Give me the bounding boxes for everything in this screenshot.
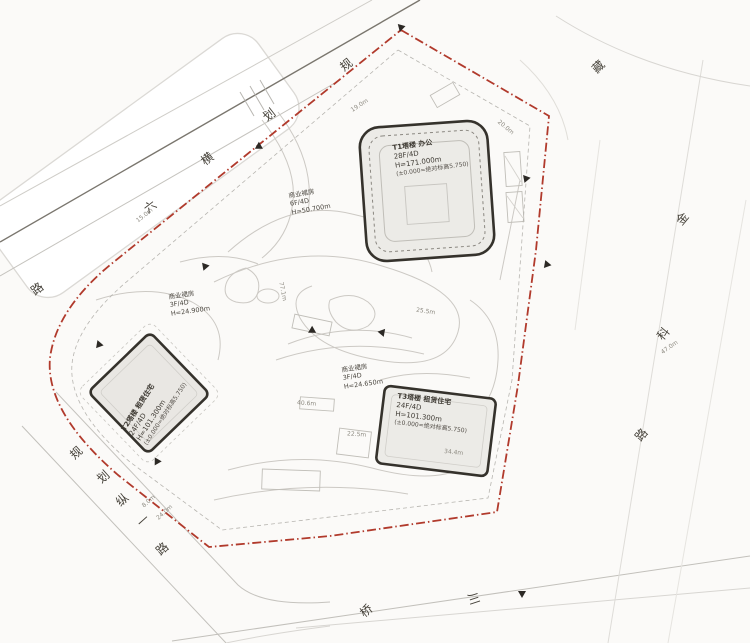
neighbor-building-outline (0, 23, 309, 308)
road-lines (0, 0, 750, 643)
podium-label-2: 商业裙房 3F/4D H=24.900m (168, 288, 211, 319)
plan-linework (0, 0, 750, 643)
site-plan-canvas: 规划横六路规划纵一路金科路藏桥川15.0m19.0m20.0m8.0m24.0m… (0, 0, 750, 643)
podium-label-3: 商业裙房 3F/4D H=24.650m (341, 361, 384, 392)
